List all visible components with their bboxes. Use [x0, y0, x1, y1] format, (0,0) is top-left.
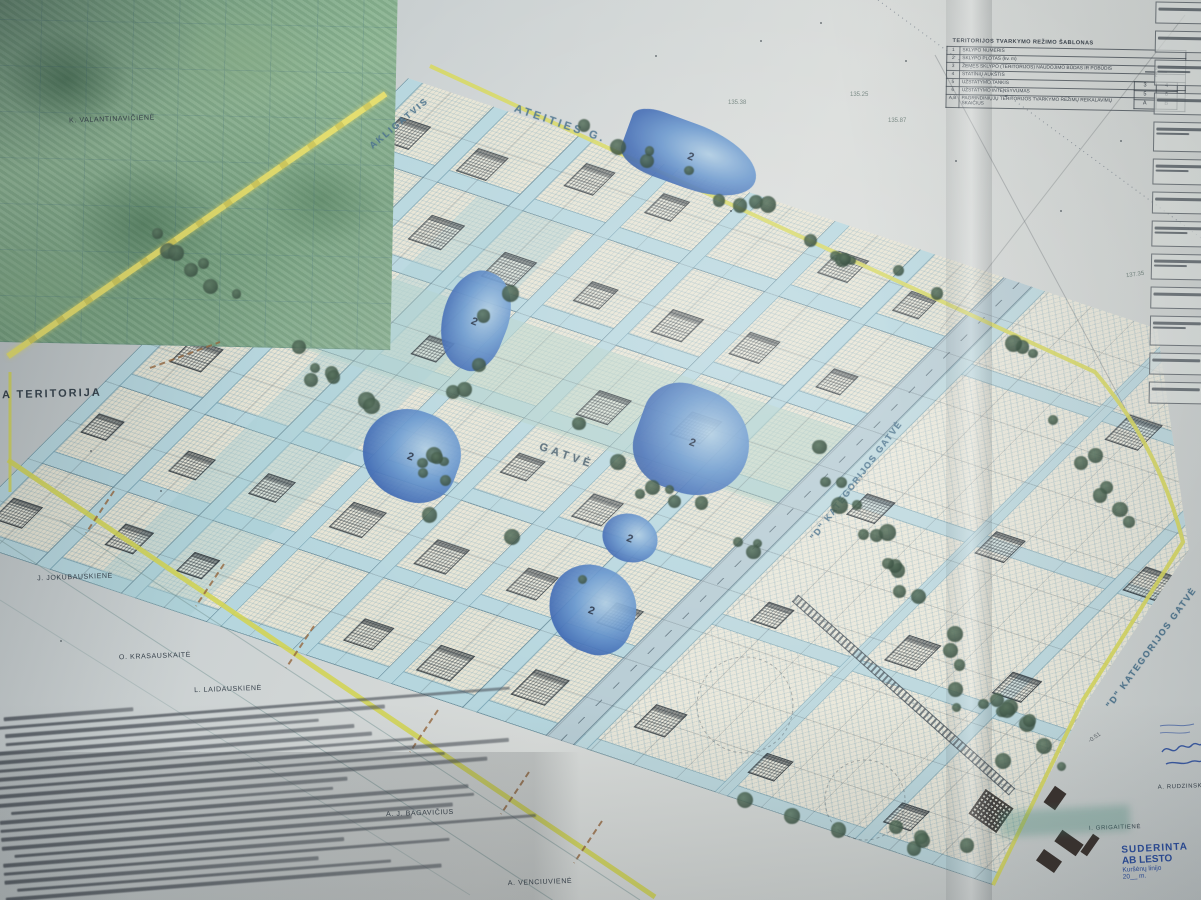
right-strip-row [1150, 286, 1201, 309]
micro-text-line [1158, 8, 1201, 11]
micro-text-line [1155, 198, 1201, 201]
right-strip-row [1152, 191, 1201, 214]
survey-dot [905, 60, 907, 62]
right-strip-row [1153, 121, 1201, 152]
tree-symbol [431, 452, 443, 464]
tree-symbol [422, 507, 438, 523]
tree-symbol [232, 289, 242, 299]
tree-symbol [1023, 714, 1036, 727]
elevation-mark: 137.35 [1126, 271, 1145, 279]
micro-text-line [1152, 359, 1200, 362]
micro-text-line [1154, 264, 1188, 267]
tree-symbol [310, 363, 320, 373]
micro-text-line [1155, 227, 1201, 230]
survey-dot [1005, 95, 1007, 97]
micro-text-line [1157, 66, 1201, 69]
tree-symbol [713, 194, 725, 206]
micro-text-line [1156, 132, 1190, 135]
micro-text-line [1156, 165, 1201, 168]
diagram-cell: 3 [1134, 82, 1156, 91]
notes-text-block [0, 671, 543, 900]
survey-dot [1060, 210, 1062, 212]
tree-symbol [152, 228, 163, 239]
tree-symbol [1088, 448, 1103, 463]
tree-symbol [999, 702, 1015, 718]
micro-text-line [1153, 322, 1201, 325]
right-edge-legend-strip [1148, 2, 1201, 412]
building-footprint [1044, 786, 1067, 810]
survey-dot [655, 55, 657, 57]
tree-symbol [1005, 335, 1022, 352]
tree-symbol [820, 477, 831, 488]
tree-symbol [1036, 738, 1052, 754]
micro-text-line [1156, 128, 1201, 131]
tree-symbol [477, 309, 490, 322]
micro-text-line [1157, 70, 1191, 73]
pond-label: 2 [687, 436, 697, 449]
building-footprint [1036, 849, 1062, 873]
tree-symbol [947, 626, 963, 642]
legend-row-num: A,B [946, 94, 959, 107]
right-strip-row [1149, 352, 1201, 375]
cable-label: -0.51 [1088, 732, 1103, 745]
tree-symbol [952, 703, 961, 712]
tree-symbol [960, 838, 975, 853]
tree-symbol [804, 234, 817, 247]
right-strip-row [1149, 381, 1201, 404]
right-strip-row [1154, 59, 1201, 86]
tree-symbol [695, 496, 708, 509]
legend-row-num: 1 [947, 46, 960, 54]
tree-symbol [995, 753, 1011, 769]
tree-symbol [684, 166, 693, 175]
signature-squiggles [1160, 724, 1201, 764]
tree-symbol [1123, 516, 1135, 528]
tree-symbol [893, 265, 904, 276]
tree-symbol [978, 699, 989, 710]
survey-dot [60, 640, 62, 642]
elevation-mark: 135.25 [850, 92, 868, 98]
right-strip-row [1151, 253, 1201, 280]
micro-text-line [1153, 326, 1187, 329]
elevation-mark: 135.87 [888, 118, 906, 124]
micro-text-line [1158, 37, 1201, 40]
tree-symbol [418, 468, 428, 478]
tree-symbol [760, 196, 777, 213]
tree-symbol [184, 263, 198, 277]
micro-text-line [1155, 231, 1189, 234]
tree-symbol [1057, 762, 1067, 772]
tree-symbol [733, 198, 748, 213]
legend-box: TERITORIJOS TVARKYMO REŽIMO ŠABLONAS 1SK… [945, 38, 1186, 112]
tree-symbol [292, 340, 306, 354]
tree-symbol [668, 495, 681, 508]
legend-row-num: 2 [947, 54, 960, 62]
map-photo: 2 2 2 2 2 2 AKLIGATVIS ATEITIES G. GATVĖ… [0, 0, 1201, 900]
tree-symbol [168, 245, 184, 261]
survey-dot [160, 490, 162, 492]
tree-symbol [1093, 488, 1108, 503]
micro-text-line [1152, 388, 1200, 391]
tree-symbol [746, 545, 761, 560]
tree-symbol [1112, 502, 1127, 517]
tree-symbol [882, 558, 893, 569]
tree-symbol [879, 524, 896, 541]
survey-dot [820, 22, 822, 24]
tree-symbol [1028, 349, 1037, 358]
survey-dot [90, 450, 92, 452]
tree-symbol [645, 146, 655, 156]
tree-symbol [852, 500, 861, 509]
tree-symbol [831, 497, 848, 514]
right-strip-row [1155, 2, 1201, 25]
owner-label: O. KRASAUSKAITĖ [119, 652, 191, 662]
survey-dot [955, 160, 957, 162]
tree-symbol [737, 792, 753, 808]
tree-symbol [812, 440, 827, 455]
micro-text-line [1153, 293, 1201, 296]
tree-symbol [198, 258, 209, 269]
pond-label: 2 [625, 532, 635, 545]
tree-symbol [472, 358, 486, 372]
tree-symbol [948, 682, 963, 697]
pond-label: 2 [686, 151, 696, 164]
tree-symbol [327, 370, 341, 384]
elevation-mark: 135.38 [728, 100, 746, 106]
tree-symbol [645, 480, 660, 495]
right-strip-row [1154, 92, 1201, 115]
tree-symbol [831, 822, 847, 838]
pond-label: 2 [405, 450, 415, 463]
tree-symbol [931, 287, 943, 299]
tree-symbol [578, 119, 590, 131]
right-strip-row [1151, 220, 1201, 247]
micro-text-line [1154, 260, 1201, 263]
right-strip-row [1155, 31, 1201, 54]
owner-label: A. RUDZINSK [1158, 783, 1201, 791]
approval-stamp: SUDERINTA AB LESTO Kuršėnų linijo 20__ m… [1121, 841, 1189, 880]
tree-symbol [457, 382, 471, 396]
diagram-cell: A [1134, 100, 1156, 109]
micro-text-line [1156, 169, 1190, 172]
tree-symbol [784, 808, 800, 824]
survey-dot [1120, 140, 1122, 142]
tree-symbol [363, 398, 380, 415]
legend-row-num: 6 [946, 86, 959, 94]
tree-symbol [733, 537, 743, 547]
legend-row-num: 5 [946, 78, 959, 86]
legend-row-num: 3 [947, 62, 960, 70]
right-strip-row [1152, 158, 1201, 185]
tree-symbol [839, 253, 851, 265]
owner-label: A. VENCIUVIENĖ [508, 878, 573, 887]
tree-symbol [836, 477, 847, 488]
tree-symbol [954, 659, 966, 671]
legend-row-num: 4 [946, 70, 959, 78]
survey-dot [760, 40, 762, 42]
pond-label: 2 [586, 604, 596, 617]
inset-grid-lines [0, 0, 398, 350]
tree-symbol [635, 489, 645, 499]
diagram-cell: 5 [1134, 91, 1156, 100]
faded-stamp-smudge [999, 805, 1130, 838]
survey-dot [730, 210, 732, 212]
aerial-photo-inset [0, 0, 398, 350]
micro-text-line [1157, 99, 1201, 102]
tree-symbol [610, 454, 626, 470]
tree-symbol [1048, 415, 1058, 425]
right-strip-row [1150, 315, 1201, 346]
